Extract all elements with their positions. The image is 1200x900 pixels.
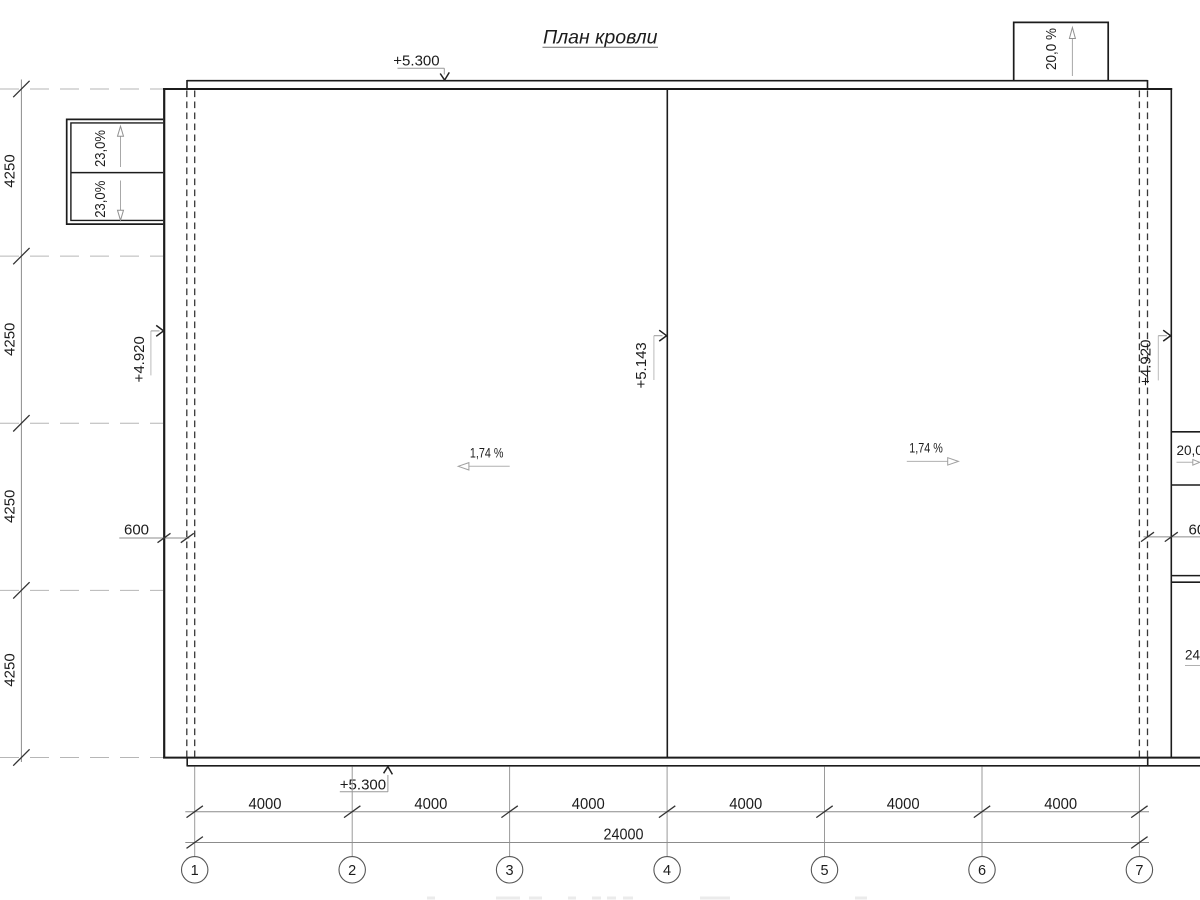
svg-text:600: 600	[1189, 522, 1200, 539]
svg-text:+5.300: +5.300	[340, 776, 386, 793]
svg-text:План кровли: План кровли	[543, 27, 658, 48]
svg-text:600: 600	[124, 522, 149, 539]
svg-text:1,74 %: 1,74 %	[470, 444, 504, 460]
svg-text:23,0%: 23,0%	[93, 130, 109, 167]
svg-text:4000: 4000	[249, 796, 282, 813]
svg-text:4000: 4000	[729, 796, 762, 813]
svg-text:+5.300: +5.300	[393, 52, 439, 69]
svg-text:4250: 4250	[2, 154, 19, 187]
svg-text:3: 3	[506, 863, 514, 879]
svg-text:4000: 4000	[572, 796, 605, 813]
svg-text:20,0 %: 20,0 %	[1044, 28, 1060, 70]
svg-text:4000: 4000	[414, 796, 447, 813]
svg-text:7: 7	[1135, 863, 1143, 879]
svg-text:1,74 %: 1,74 %	[909, 439, 943, 455]
svg-text:24,7 %: 24,7 %	[1185, 648, 1200, 663]
svg-text:5: 5	[820, 863, 828, 879]
svg-text:20,0 %: 20,0 %	[1177, 443, 1200, 458]
svg-text:4000: 4000	[887, 796, 920, 813]
svg-text:23,0%: 23,0%	[93, 181, 109, 218]
svg-text:4: 4	[663, 863, 671, 879]
svg-text:2: 2	[348, 863, 356, 879]
svg-text:4250: 4250	[2, 323, 19, 356]
svg-text:6: 6	[978, 863, 986, 879]
svg-text:24000: 24000	[604, 827, 644, 844]
svg-text:4250: 4250	[2, 653, 19, 686]
svg-text:4000: 4000	[1044, 796, 1077, 813]
svg-text:+4.920: +4.920	[131, 336, 148, 382]
svg-text:1: 1	[191, 863, 199, 879]
svg-text:4250: 4250	[2, 490, 19, 523]
svg-text:+5.143: +5.143	[633, 342, 650, 388]
svg-text:+4.920: +4.920	[1137, 340, 1154, 386]
